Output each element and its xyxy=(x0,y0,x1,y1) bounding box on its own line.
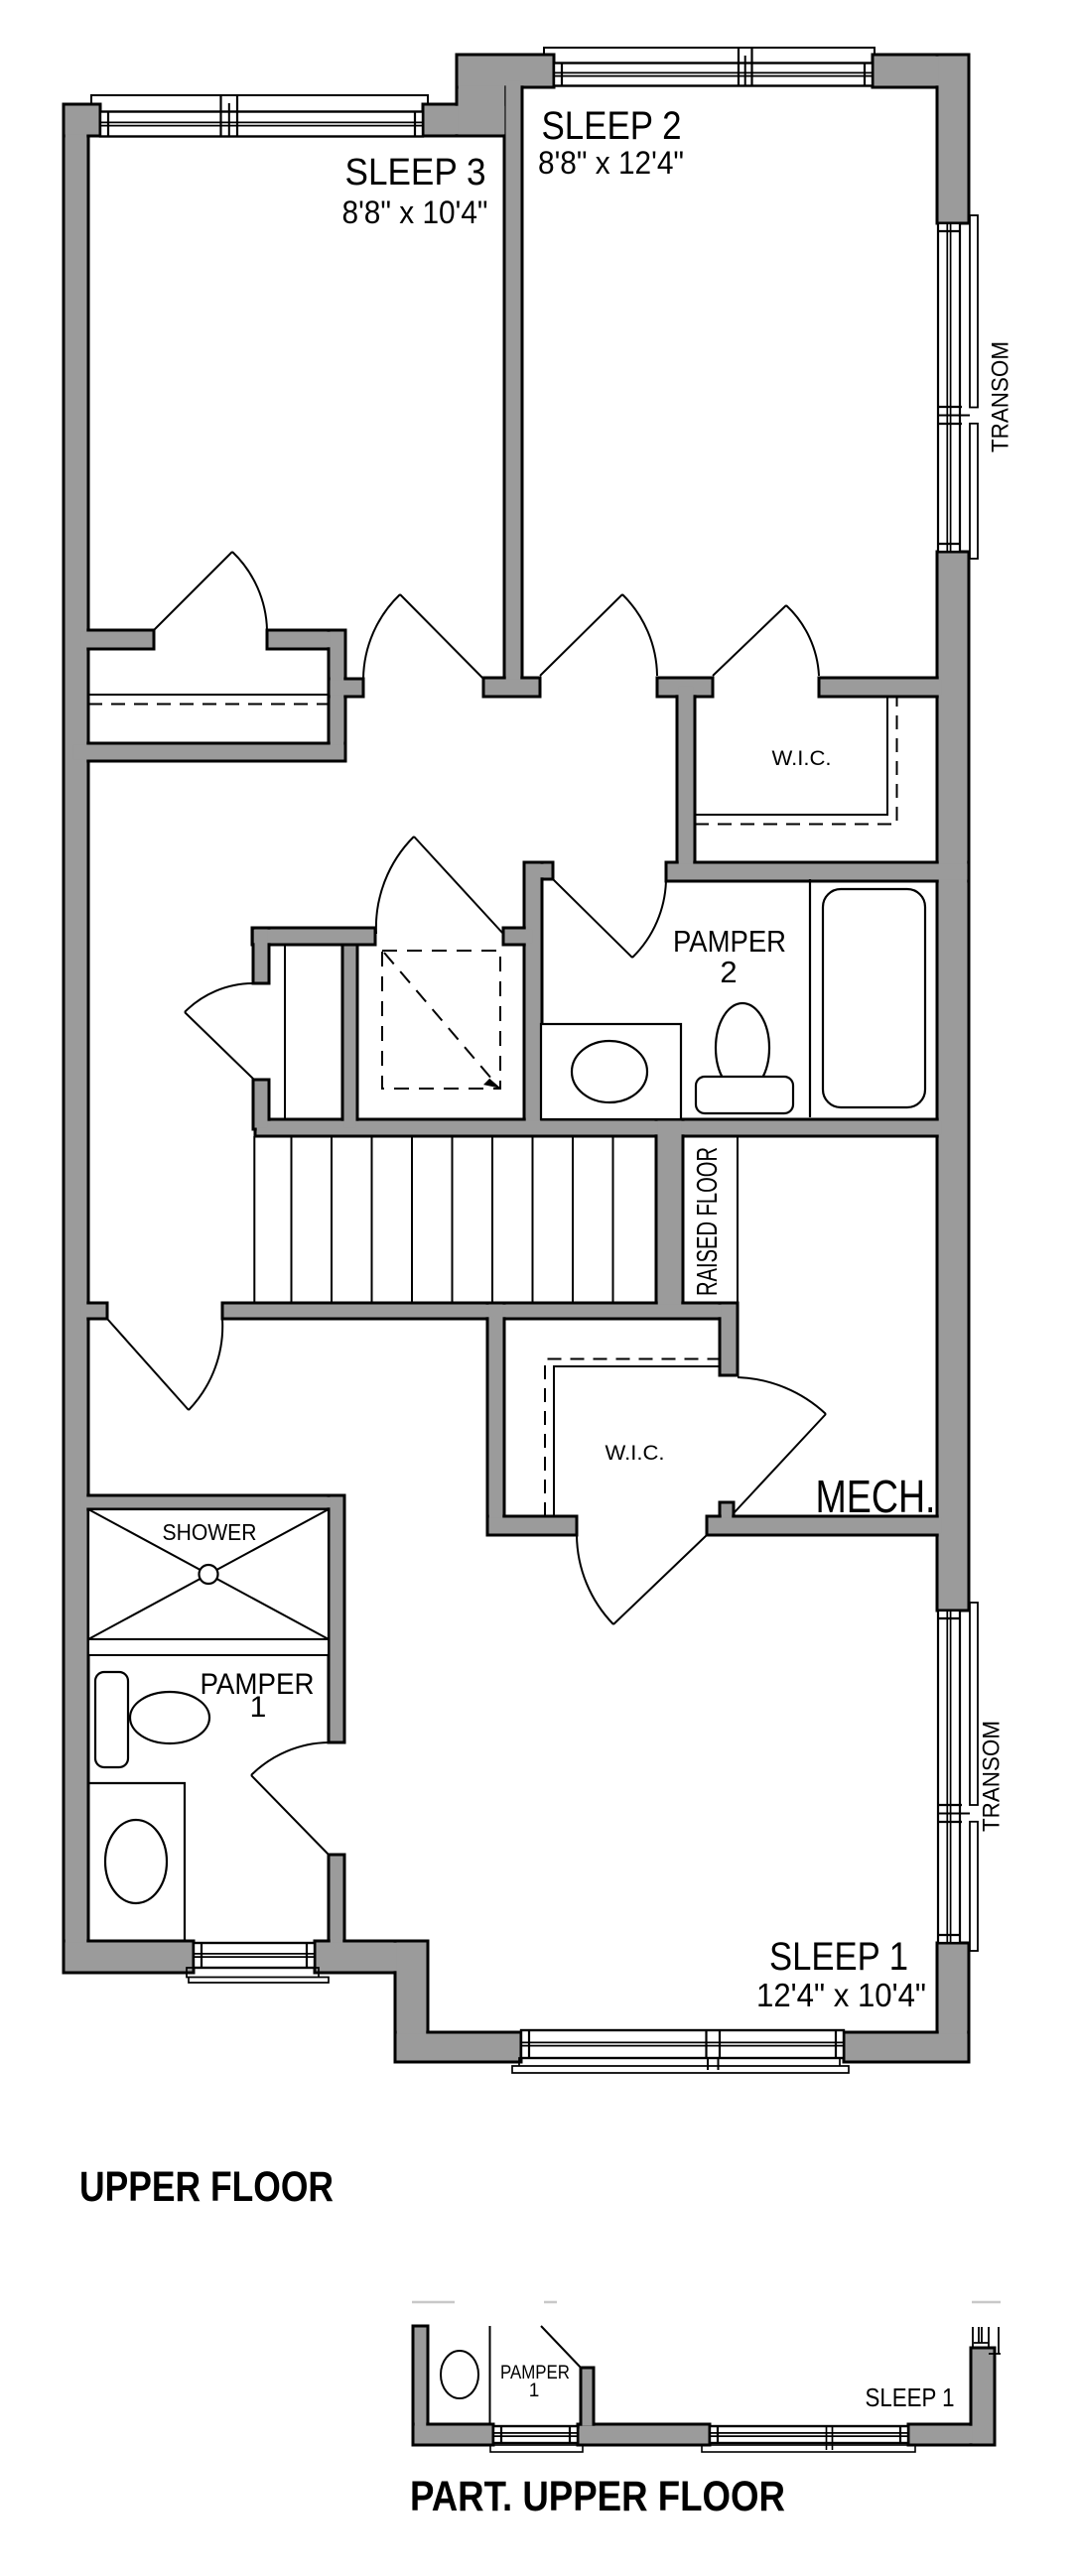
svg-text:TRANSOM: TRANSOM xyxy=(979,1721,1006,1832)
svg-text:SLEEP 1: SLEEP 1 xyxy=(769,1935,908,1979)
svg-text:1: 1 xyxy=(250,1691,267,1724)
svg-text:SLEEP 1: SLEEP 1 xyxy=(866,2383,955,2412)
svg-text:8'8" x 12'4": 8'8" x 12'4" xyxy=(538,145,684,181)
svg-text:PAMPER: PAMPER xyxy=(673,924,786,959)
svg-text:8'8" x 10'4": 8'8" x 10'4" xyxy=(342,194,488,230)
svg-text:12'4" x 10'4": 12'4" x 10'4" xyxy=(756,1977,926,2013)
svg-text:1: 1 xyxy=(529,2381,540,2401)
svg-text:2: 2 xyxy=(720,955,737,989)
svg-text:SLEEP 2: SLEEP 2 xyxy=(542,104,682,148)
svg-text:SLEEP 3: SLEEP 3 xyxy=(345,152,486,193)
svg-text:W.I.C.: W.I.C. xyxy=(606,1442,665,1465)
svg-text:RAISED FLOOR: RAISED FLOOR xyxy=(692,1147,724,1296)
svg-text:MECH.: MECH. xyxy=(816,1471,936,1522)
svg-text:SHOWER: SHOWER xyxy=(163,1519,257,1545)
svg-text:TRANSOM: TRANSOM xyxy=(988,341,1014,452)
svg-text:PART. UPPER FLOOR: PART. UPPER FLOOR xyxy=(410,2473,785,2520)
svg-text:W.I.C.: W.I.C. xyxy=(772,747,832,770)
svg-text:UPPER FLOOR: UPPER FLOOR xyxy=(79,2163,334,2211)
